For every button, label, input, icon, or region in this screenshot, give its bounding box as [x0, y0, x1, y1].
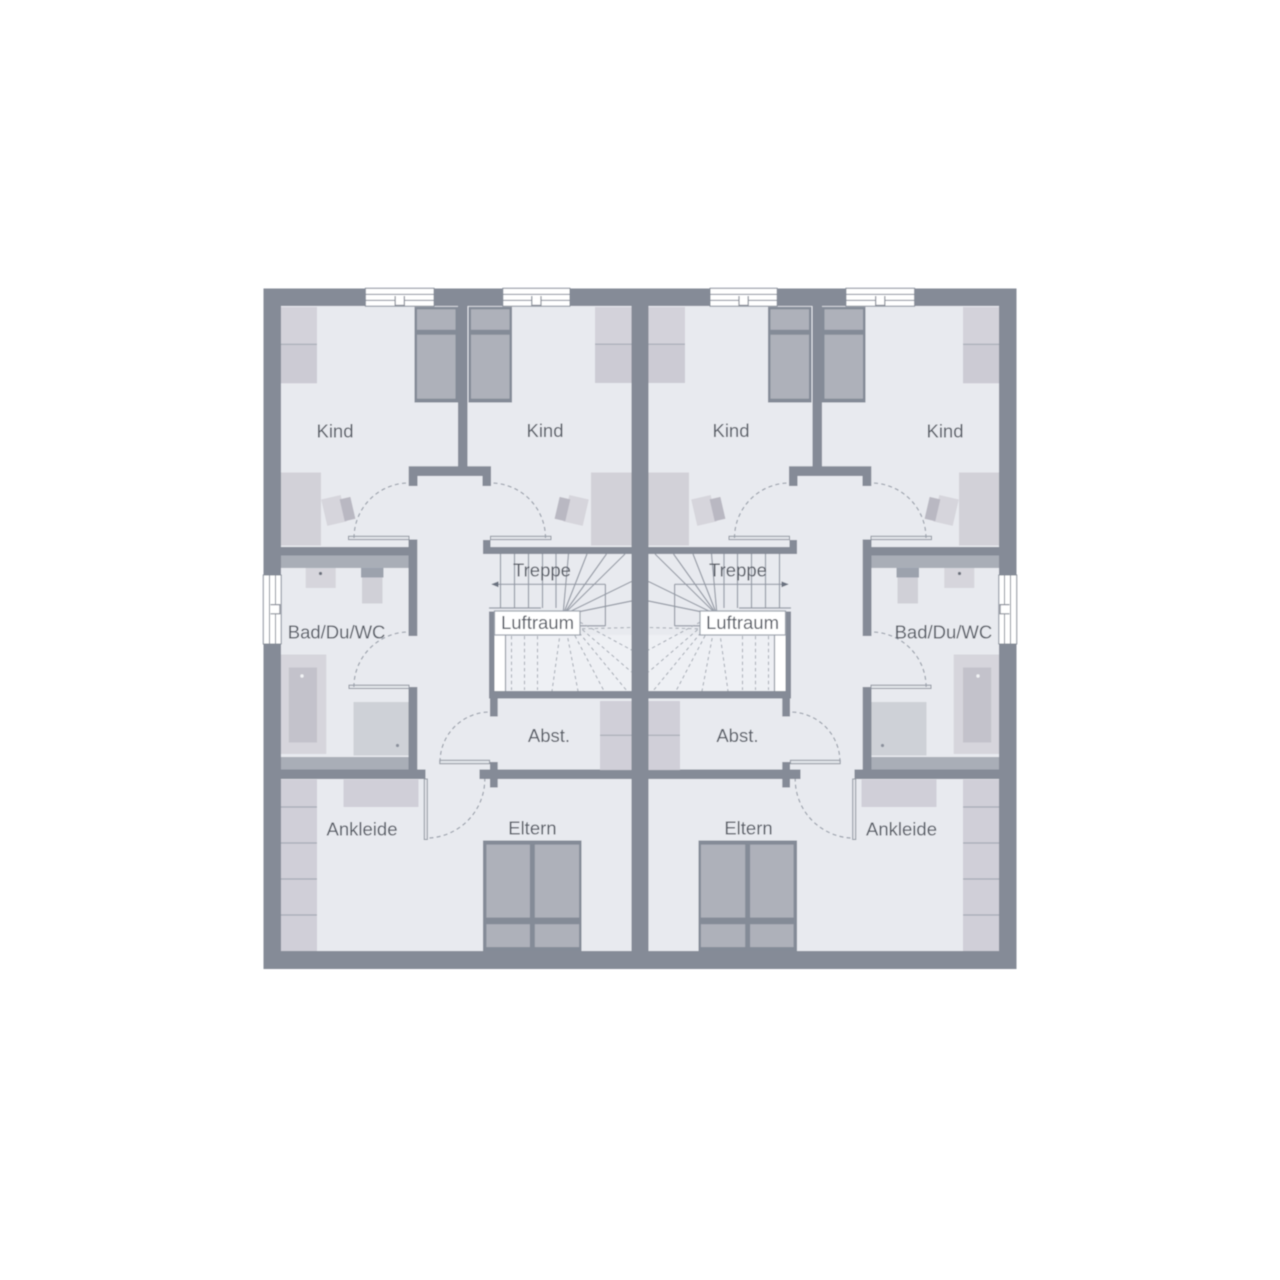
svg-text:Kind: Kind: [712, 420, 749, 441]
svg-text:Bad/Du/WC: Bad/Du/WC: [895, 622, 993, 643]
svg-text:Ankleide: Ankleide: [327, 819, 398, 840]
svg-text:Luftraum: Luftraum: [706, 612, 779, 633]
svg-text:Bad/Du/WC: Bad/Du/WC: [288, 622, 386, 643]
svg-text:Treppe: Treppe: [709, 560, 767, 581]
svg-text:Ankleide: Ankleide: [866, 819, 937, 840]
svg-text:Abst.: Abst.: [716, 725, 758, 746]
svg-text:Abst.: Abst.: [528, 725, 570, 746]
svg-text:Eltern: Eltern: [724, 818, 772, 839]
svg-text:Luftraum: Luftraum: [501, 612, 574, 633]
svg-text:Eltern: Eltern: [508, 818, 556, 839]
svg-text:Treppe: Treppe: [513, 560, 571, 581]
svg-text:Kind: Kind: [926, 421, 963, 442]
svg-text:Kind: Kind: [526, 420, 563, 441]
svg-text:Kind: Kind: [316, 421, 353, 442]
